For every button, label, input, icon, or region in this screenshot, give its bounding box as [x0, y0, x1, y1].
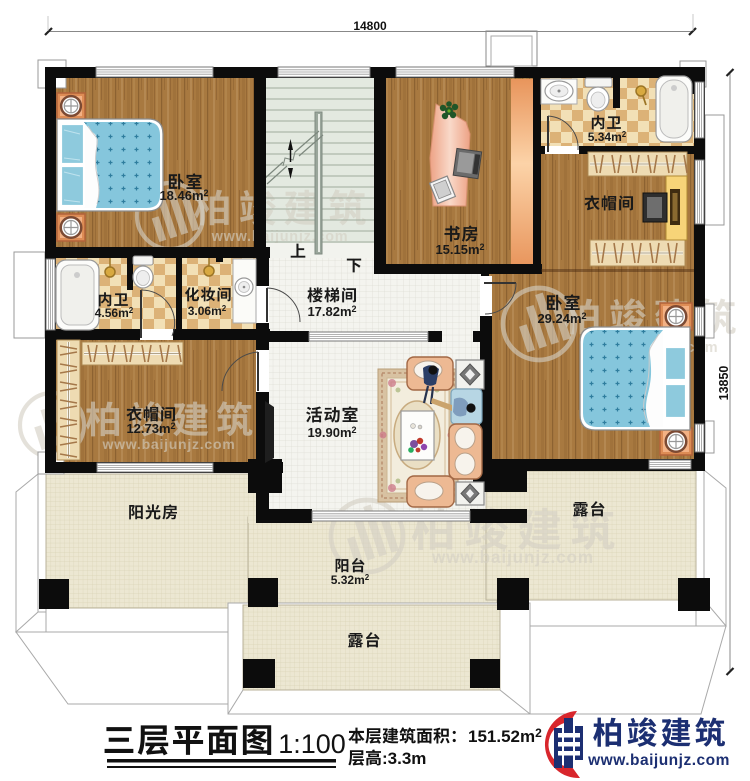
svg-text:18.46m2: 18.46m2: [159, 188, 208, 203]
svg-text:151.52m2: 151.52m2: [468, 726, 542, 746]
svg-text:www.baijunjz.com: www.baijunjz.com: [431, 548, 594, 567]
svg-text:5.32m2: 5.32m2: [331, 573, 370, 587]
svg-text:www.baijunjz.com: www.baijunjz.com: [587, 752, 730, 769]
svg-text::3.3m: :3.3m: [382, 749, 426, 768]
svg-text:www.baijunjz.com: www.baijunjz.com: [101, 436, 235, 452]
svg-text:1:100: 1:100: [278, 729, 346, 759]
svg-text:19.90m2: 19.90m2: [307, 425, 356, 440]
svg-text:14800: 14800: [353, 19, 387, 33]
svg-text:3.06m2: 3.06m2: [188, 304, 227, 318]
svg-text:17.82m2: 17.82m2: [307, 304, 356, 319]
svg-text:12.73m2: 12.73m2: [126, 421, 175, 436]
svg-text:4.56m2: 4.56m2: [95, 306, 134, 320]
svg-text:5.34m2: 5.34m2: [588, 130, 627, 144]
svg-text:15.15m2: 15.15m2: [435, 242, 484, 257]
svg-text:13850: 13850: [717, 366, 731, 401]
svg-text:29.24m2: 29.24m2: [537, 311, 586, 326]
